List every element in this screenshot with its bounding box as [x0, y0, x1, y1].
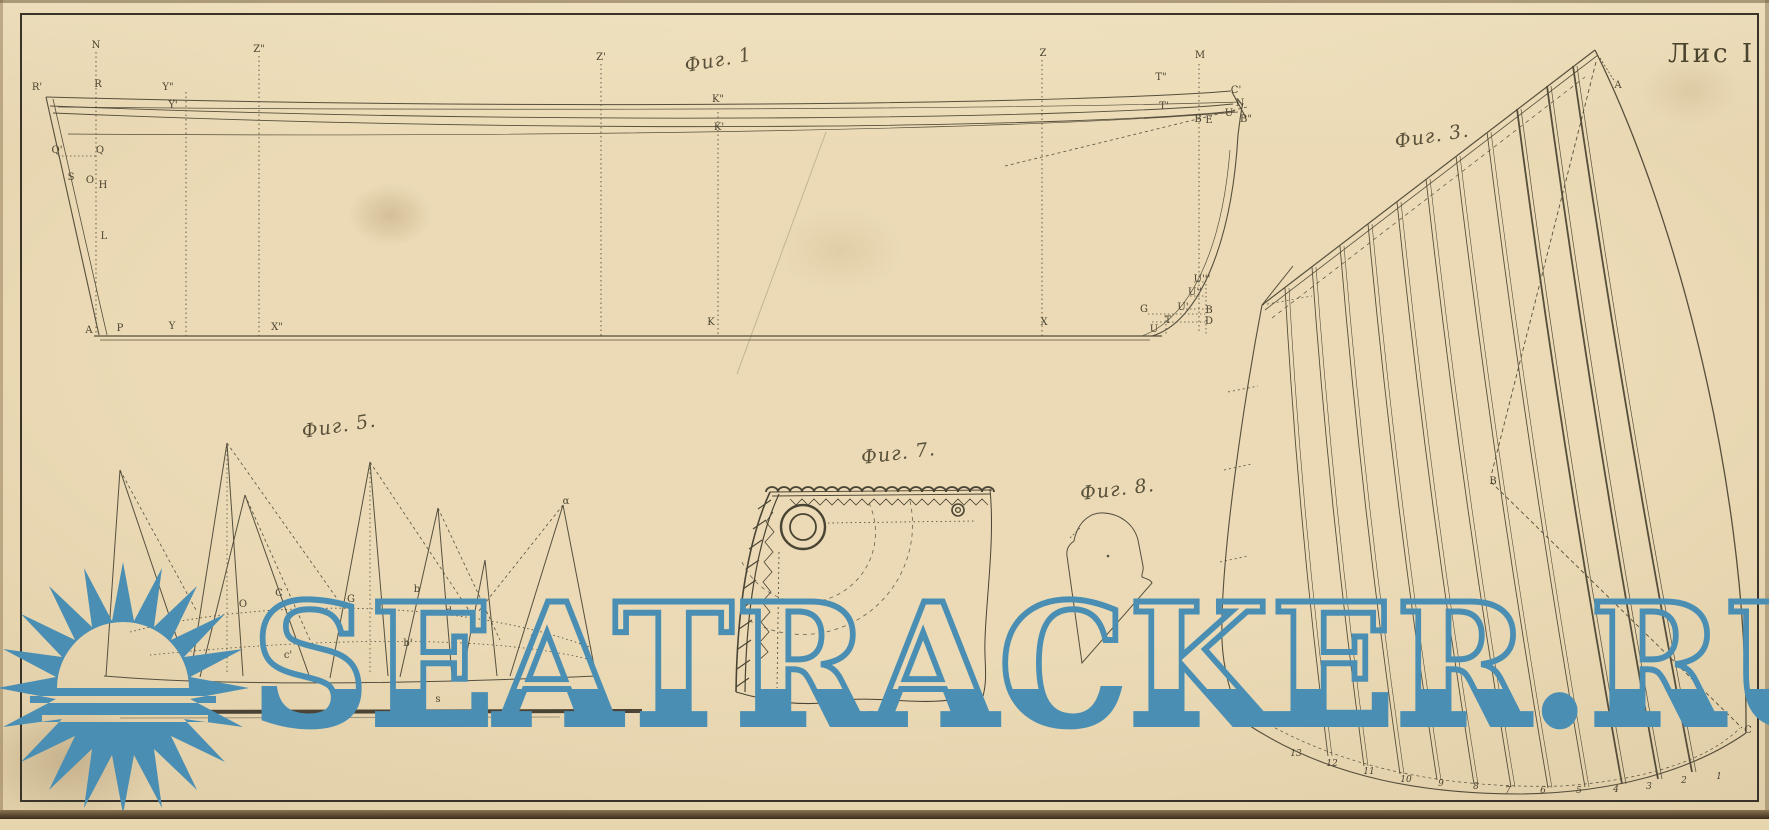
svg-text:M: M	[1195, 50, 1205, 61]
svg-text:L: L	[101, 231, 108, 242]
svg-text:Q: Q	[96, 145, 104, 156]
figure-3-caption: Фиг. 3.	[1393, 120, 1470, 153]
figure-8-caption: Фиг. 8.	[1079, 474, 1156, 505]
svg-text:Z: Z	[1040, 48, 1047, 59]
svg-text:R': R'	[32, 82, 42, 93]
svg-text:U: U	[1150, 324, 1158, 335]
svg-text:α: α	[563, 496, 570, 507]
svg-text:Y: Y	[168, 321, 176, 332]
svg-text:5: 5	[1576, 786, 1582, 796]
svg-text:B: B	[1205, 305, 1212, 316]
figure-1-boat-profile	[46, 52, 1247, 374]
svg-text:10: 10	[1400, 775, 1412, 785]
svg-text:4: 4	[1612, 785, 1619, 795]
svg-text:3: 3	[1646, 782, 1652, 792]
figure-5-caption: Фиг. 5.	[300, 410, 377, 443]
svg-text:E: E	[1205, 115, 1212, 126]
svg-text:X: X	[1040, 317, 1048, 328]
svg-text:P: P	[117, 323, 124, 334]
svg-text:S: S	[68, 172, 75, 183]
svg-text:O: O	[86, 175, 94, 186]
scanned-plate-page: { "sheet": { "label": "Лис I" }, "waterm…	[0, 0, 1769, 819]
svg-text:U''': U'''	[1194, 274, 1211, 285]
svg-text:A: A	[1613, 80, 1622, 91]
svg-text:11: 11	[1363, 767, 1374, 777]
svg-text:8: 8	[1473, 782, 1479, 792]
svg-text:2: 2	[1680, 776, 1687, 786]
svg-text:B": B"	[1240, 114, 1252, 125]
sun-logo-icon	[0, 560, 280, 830]
svg-text:K: K	[707, 317, 715, 328]
svg-text:N: N	[1236, 98, 1245, 109]
svg-text:U: U	[1225, 108, 1233, 119]
svg-text:D: D	[1205, 316, 1213, 327]
svg-text:9: 9	[1438, 779, 1444, 789]
svg-text:T': T'	[1159, 101, 1168, 112]
svg-text:T": T"	[1155, 72, 1166, 83]
svg-text:C': C'	[1231, 85, 1241, 96]
svg-text:6: 6	[1540, 786, 1546, 796]
svg-text:H: H	[99, 180, 108, 191]
svg-text:Y": Y"	[161, 82, 173, 93]
svg-text:T: T	[1165, 315, 1172, 326]
figure-1-labels: N R' R Y" Y' Q' Q S O H L A P Y Z" Z' K"…	[32, 40, 1252, 336]
sheet-label: Лис I	[1668, 39, 1755, 69]
scan-edge-bottom	[0, 810, 1769, 819]
svg-text:B: B	[1194, 114, 1201, 125]
svg-text:A: A	[84, 325, 93, 336]
svg-text:U'': U''	[1188, 287, 1202, 298]
figure-1-caption: Фиг. 1	[683, 43, 754, 76]
svg-text:1: 1	[1716, 772, 1722, 782]
svg-text:B: B	[1489, 476, 1496, 487]
svg-text:U': U'	[1177, 302, 1188, 313]
svg-text:Q': Q'	[52, 145, 63, 156]
svg-text:N: N	[92, 40, 101, 51]
figure-7-caption: Фиг. 7.	[860, 438, 937, 469]
svg-text:G: G	[1140, 304, 1148, 315]
svg-text:Z': Z'	[596, 52, 606, 63]
svg-text:Y': Y'	[167, 100, 177, 111]
svg-text:R: R	[94, 79, 102, 90]
svg-text:7: 7	[1505, 786, 1511, 796]
svg-text:K': K'	[714, 122, 724, 133]
svg-text:K": K"	[712, 94, 724, 105]
svg-text:Z": Z"	[253, 44, 265, 55]
svg-text:X": X"	[271, 322, 283, 333]
